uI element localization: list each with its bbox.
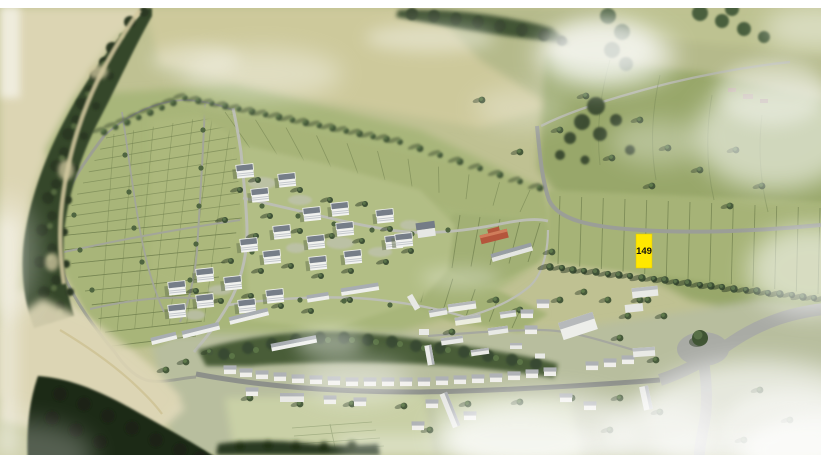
svg-text:149: 149 [636, 246, 652, 257]
